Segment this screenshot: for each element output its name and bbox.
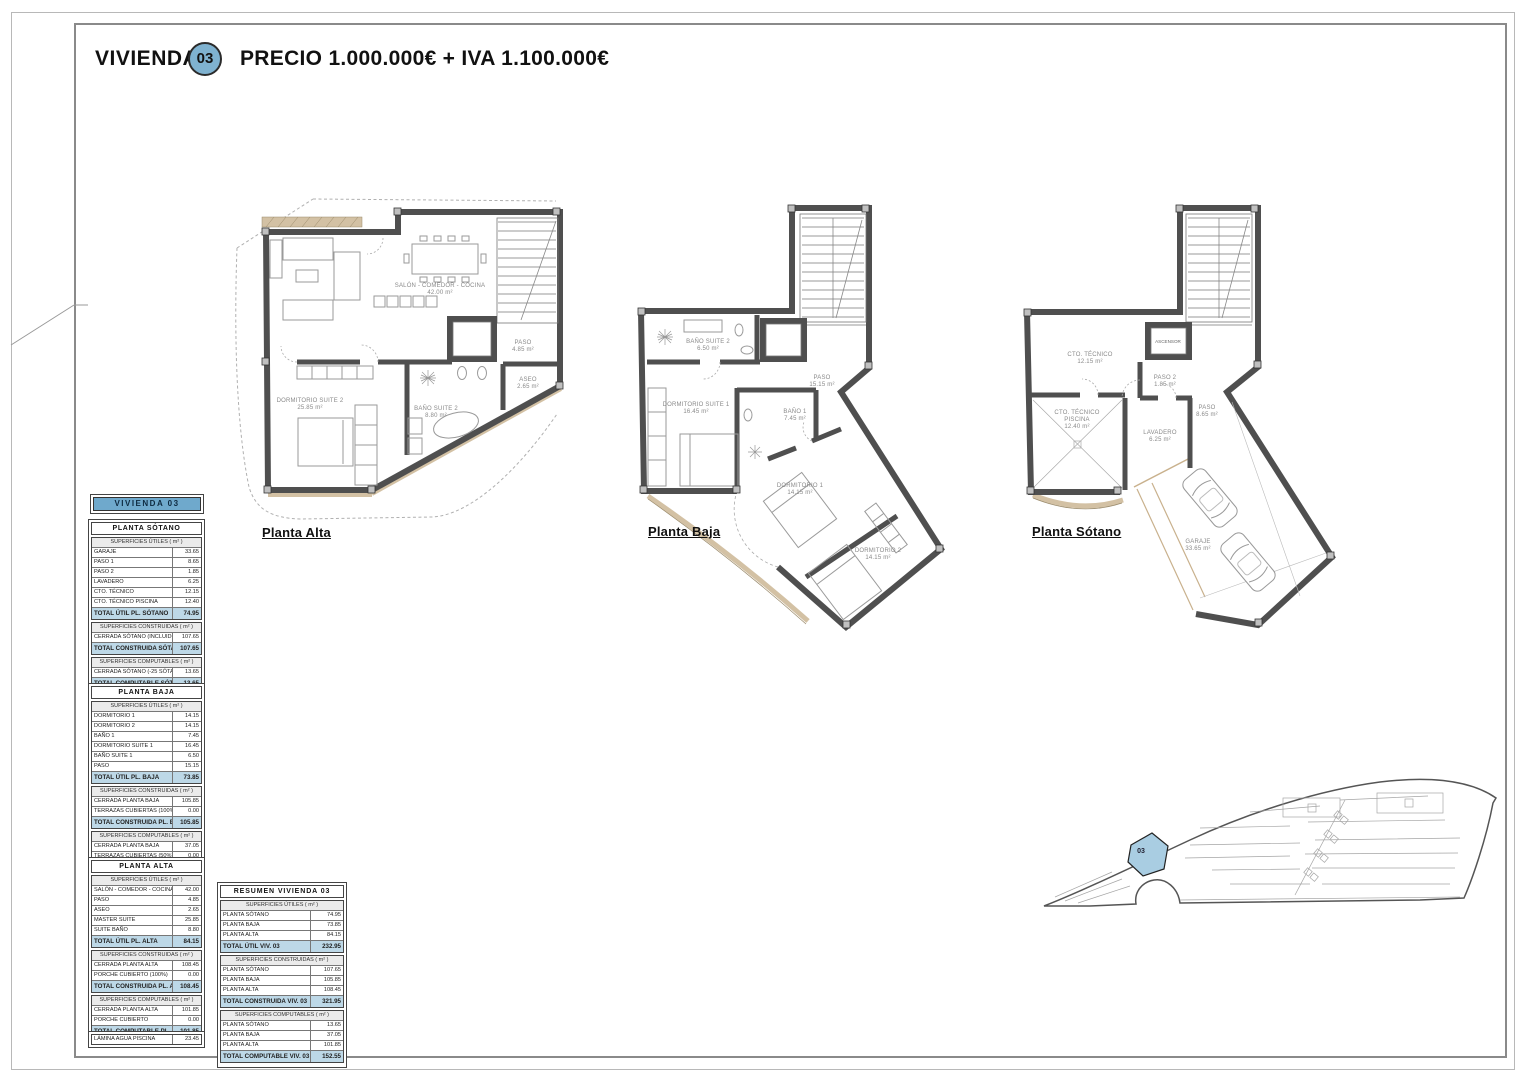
row-value: 8.65	[172, 558, 201, 567]
total-value: 74.95	[172, 608, 201, 619]
row-value: 105.85	[172, 797, 201, 806]
section-subheader: SUPERFICIES CONSTRUIDAS ( m² )	[221, 956, 343, 965]
table-title: RESUMEN VIVIENDA 03	[220, 885, 344, 898]
unit-number-badge: 03	[188, 42, 222, 76]
table-row: PLANTA ALTA 84.15	[221, 930, 343, 940]
row-label: CERRADA PLANTA ALTA	[92, 1006, 172, 1015]
row-label: CTO. TÉCNICO	[92, 588, 172, 597]
table-section: SUPERFICIES ÚTILES ( m² ) DORMITORIO 1 1…	[91, 701, 202, 784]
table-row: MASTER SUITE 25.85	[92, 915, 201, 925]
room-label: CTO. TÉCNICO	[1067, 351, 1112, 358]
table-section: SUPERFICIES COMPUTABLES ( m² ) PLANTA SÓ…	[220, 1010, 344, 1063]
row-value: 14.15	[172, 712, 201, 721]
row-value: 2.65	[172, 906, 201, 915]
shower-icon	[748, 445, 762, 459]
total-label: TOTAL COMPUTABLE VIV. 03	[221, 1051, 310, 1062]
row-value: 25.85	[172, 916, 201, 925]
table-row: CERRADA PLANTA ALTA 101.85	[92, 1005, 201, 1015]
table-total-row: TOTAL COMPUTABLE VIV. 03 152.55	[221, 1050, 343, 1062]
table-row: SALÓN - COMEDOR - COCINA 42.00	[92, 885, 201, 895]
table-row: PLANTA SÓTANO 74.95	[221, 910, 343, 920]
row-label: CERRADA PLANTA BAJA	[92, 842, 172, 851]
row-label: PLANTA ALTA	[221, 986, 310, 995]
row-value: 101.85	[172, 1006, 201, 1015]
row-value: 73.85	[310, 921, 343, 930]
section-subheader: SUPERFICIES ÚTILES ( m² )	[221, 901, 343, 910]
room-area: 6.50 m²	[697, 346, 719, 352]
section-subheader: SUPERFICIES COMPUTABLES ( m² )	[92, 832, 201, 841]
room-label: PASO	[514, 340, 531, 346]
table-planta-sotano: PLANTA SÓTANO SUPERFICIES ÚTILES ( m² ) …	[88, 519, 205, 695]
room-area: 1.85 m²	[1154, 382, 1176, 388]
table-row: CERRADA PLANTA BAJA 105.85	[92, 796, 201, 806]
fold-mark	[0, 290, 100, 360]
table-row: PORCHE CUBIERTO (100%) 0.00	[92, 970, 201, 980]
total-label: TOTAL CONSTRUIDA VIV. 03	[221, 996, 310, 1007]
table-row: CERRADA SÓTANO (-25 SÓTANO) 13.65	[92, 667, 201, 677]
row-label: PASO	[92, 896, 172, 905]
room-label: PASO 2	[1154, 375, 1177, 381]
row-label: CERRADA SÓTANO (INCLUIDO SOT.)	[92, 633, 172, 642]
room-area: 4.85 m²	[512, 347, 534, 353]
room-label: CTO. TÉCNICO	[1054, 409, 1099, 416]
section-subheader: SUPERFICIES COMPUTABLES ( m² )	[92, 996, 201, 1005]
table-total-row: TOTAL CONSTRUIDA PL. BAJA 105.85	[92, 816, 201, 828]
sheet-page: VIVIENDA 03 PRECIO 1.000.000€ + IVA 1.10…	[0, 0, 1527, 1080]
room-area: 15.15 m²	[809, 382, 834, 388]
table-row: DORMITORIO SUITE 1 16.45	[92, 741, 201, 751]
row-value: 13.65	[172, 668, 201, 677]
row-value: 108.45	[172, 961, 201, 970]
table-section: SUPERFICIES CONSTRUIDAS ( m² ) PLANTA SÓ…	[220, 955, 344, 1008]
section-subheader: SUPERFICIES ÚTILES ( m² )	[92, 876, 201, 885]
row-value: 107.65	[172, 633, 201, 642]
row-value: 101.85	[310, 1041, 343, 1050]
table-title: PLANTA SÓTANO	[91, 522, 202, 535]
shower-icon	[420, 370, 436, 386]
terrace-curve	[1033, 495, 1123, 506]
row-value: 105.85	[310, 976, 343, 985]
table-row: PLANTA ALTA 101.85	[221, 1040, 343, 1050]
unit-03-label: 03	[1137, 848, 1145, 855]
table-row: CTO. TÉCNICO 12.15	[92, 587, 201, 597]
table-row: PLANTA SÓTANO 107.65	[221, 965, 343, 975]
total-value: 73.85	[172, 772, 201, 783]
room-label: ASCENSOR	[1155, 339, 1181, 344]
site-key-plan: 03	[1035, 770, 1503, 928]
section-subheader: SUPERFICIES CONSTRUIDAS ( m² )	[92, 623, 201, 632]
table-title: PLANTA BAJA	[91, 686, 202, 699]
shower-icon	[657, 329, 673, 345]
table-row: CERRADA PLANTA ALTA 108.45	[92, 960, 201, 970]
row-label: PORCHE CUBIERTO	[92, 1016, 172, 1025]
table-lamina-agua: LÁMINA AGUA PISCINA 23.45	[88, 1031, 205, 1048]
row-label: PLANTA BAJA	[221, 921, 310, 930]
room-label: PASO	[813, 375, 830, 381]
room-area: 14.15 m²	[865, 555, 890, 561]
row-value: 8.80	[172, 926, 201, 935]
total-label: TOTAL ÚTIL PL. ALTA	[92, 936, 172, 947]
room-label: DORMITORIO 2	[855, 548, 902, 554]
room-area: 12.40 m²	[1064, 424, 1089, 430]
room-area: 25.85 m²	[297, 405, 322, 411]
row-label: LÁMINA AGUA PISCINA	[92, 1035, 172, 1044]
total-value: 108.45	[172, 981, 201, 992]
row-label: LAVADERO	[92, 578, 172, 587]
table-total-row: TOTAL ÚTIL PL. ALTA 84.15	[92, 935, 201, 947]
room-area: 8.65 m²	[1196, 412, 1218, 418]
row-label: CTO. TÉCNICO PISCINA	[92, 598, 172, 607]
row-value: 15.15	[172, 762, 201, 771]
row-value: 0.00	[172, 1016, 201, 1025]
row-label: PLANTA ALTA	[221, 1041, 310, 1050]
room-area: 12.15 m²	[1077, 359, 1102, 365]
section-subheader: SUPERFICIES ÚTILES ( m² )	[92, 538, 201, 547]
row-label: SUITE BAÑO	[92, 926, 172, 935]
room-label: SALÓN - COMEDOR - COCINA	[395, 282, 485, 289]
room-label: DORMITORIO SUITE 2	[277, 398, 344, 404]
total-value: 232.95	[310, 941, 343, 952]
table-planta-baja: PLANTA BAJA SUPERFICIES ÚTILES ( m² ) DO…	[88, 683, 205, 879]
table-row: PLANTA BAJA 37.05	[221, 1030, 343, 1040]
table-row: DORMITORIO 1 14.15	[92, 711, 201, 721]
table-row: PASO 1 8.65	[92, 557, 201, 567]
row-label: CERRADA SÓTANO (-25 SÓTANO)	[92, 668, 172, 677]
caption-planta-alta: Planta Alta	[262, 525, 331, 540]
row-label: BAÑO SUITE 1	[92, 752, 172, 761]
total-label: TOTAL ÚTIL VIV. 03	[221, 941, 310, 952]
row-value: 0.00	[172, 971, 201, 980]
planta-sotano-plan: CTO. TÉCNICO 12.15 m² ASCENSOR PASO 2 1.…	[1016, 194, 1376, 659]
row-label: ASEO	[92, 906, 172, 915]
row-value: 23.45	[172, 1035, 201, 1044]
vivienda-banner: VIVIENDA 03	[90, 494, 204, 514]
room-label: BAÑO SUITE 2	[686, 338, 730, 345]
room-label: PASO	[1198, 405, 1215, 411]
row-value: 14.15	[172, 722, 201, 731]
row-value: 42.00	[172, 886, 201, 895]
table-total-row: TOTAL ÚTIL PL. SÓTANO 74.95	[92, 607, 201, 619]
row-value: 12.40	[172, 598, 201, 607]
table-resumen: RESUMEN VIVIENDA 03 SUPERFICIES ÚTILES (…	[217, 882, 347, 1068]
row-label: PLANTA BAJA	[221, 1031, 310, 1040]
row-label: PLANTA BAJA	[221, 976, 310, 985]
room-label: PISCINA	[1064, 417, 1089, 423]
section-subheader: SUPERFICIES CONSTRUIDAS ( m² )	[92, 787, 201, 796]
room-area: 42.00 m²	[427, 290, 452, 296]
section-subheader: SUPERFICIES CONSTRUIDAS ( m² )	[92, 951, 201, 960]
row-label: CERRADA PLANTA ALTA	[92, 961, 172, 970]
room-area: 8.80 m²	[425, 413, 447, 419]
row-value: 33.65	[172, 548, 201, 557]
table-row: ASEO 2.65	[92, 905, 201, 915]
table-row: DORMITORIO 2 14.15	[92, 721, 201, 731]
row-value: 12.15	[172, 588, 201, 597]
room-area: 2.65 m²	[517, 384, 539, 390]
table-row: TERRAZAS CUBIERTAS (100%) 0.00	[92, 806, 201, 816]
row-value: 37.05	[172, 842, 201, 851]
table-row: PLANTA ALTA 108.45	[221, 985, 343, 995]
row-label: PLANTA ALTA	[221, 931, 310, 940]
table-row: BAÑO 1 7.45	[92, 731, 201, 741]
site-outline	[1044, 779, 1496, 906]
table-row: PLANTA SÓTANO 13.65	[221, 1020, 343, 1030]
row-value: 4.85	[172, 896, 201, 905]
total-label: TOTAL ÚTIL PL. BAJA	[92, 772, 172, 783]
table-row: SUITE BAÑO 8.80	[92, 925, 201, 935]
caption-planta-baja: Planta Baja	[648, 524, 720, 539]
row-value: 7.45	[172, 732, 201, 741]
total-label: TOTAL CONSTRUIDA SÓTANO	[92, 643, 172, 654]
room-label: DORMITORIO 1	[777, 483, 824, 489]
row-label: MASTER SUITE	[92, 916, 172, 925]
room-label: LAVADERO	[1143, 430, 1177, 436]
row-label: SALÓN - COMEDOR - COCINA	[92, 886, 172, 895]
row-label: PASO 1	[92, 558, 172, 567]
row-value: 84.15	[310, 931, 343, 940]
row-label: PORCHE CUBIERTO (100%)	[92, 971, 172, 980]
section-subheader: SUPERFICIES COMPUTABLES ( m² )	[221, 1011, 343, 1020]
table-row: GARAJE 33.65	[92, 547, 201, 557]
table-row: CERRADA PLANTA BAJA 37.05	[92, 841, 201, 851]
table-planta-alta: PLANTA ALTA SUPERFICIES ÚTILES ( m² ) SA…	[88, 857, 205, 1043]
total-value: 105.85	[172, 817, 201, 828]
row-label: CERRADA PLANTA BAJA	[92, 797, 172, 806]
planta-baja-plan: BAÑO SUITE 2 6.50 m² PASO 15.15 m² DORMI…	[626, 194, 961, 644]
room-label: BAÑO 1	[783, 408, 807, 415]
row-value: 1.85	[172, 568, 201, 577]
planta-alta-plan: SALÓN - COMEDOR - COCINA 42.00 m² PASO 4…	[233, 194, 578, 539]
caption-planta-sotano: Planta Sótano	[1032, 524, 1121, 539]
room-label: ASEO	[519, 377, 537, 383]
row-value: 37.05	[310, 1031, 343, 1040]
room-label: GARAJE	[1185, 539, 1210, 545]
row-label: GARAJE	[92, 548, 172, 557]
row-value: 108.45	[310, 986, 343, 995]
total-value: 84.15	[172, 936, 201, 947]
row-value: 6.50	[172, 752, 201, 761]
row-label: BAÑO 1	[92, 732, 172, 741]
page-title: VIVIENDA	[95, 47, 198, 71]
table-row: LÁMINA AGUA PISCINA 23.45	[91, 1034, 202, 1045]
vivienda-banner-label: VIVIENDA 03	[93, 497, 201, 511]
row-label: DORMITORIO SUITE 1	[92, 742, 172, 751]
room-area: 7.45 m²	[784, 416, 806, 422]
table-section: SUPERFICIES CONSTRUIDAS ( m² ) CERRADA P…	[91, 950, 202, 993]
room-area: 33.65 m²	[1185, 546, 1210, 552]
total-label: TOTAL CONSTRUIDA PL. BAJA	[92, 817, 172, 828]
table-row: PASO 15.15	[92, 761, 201, 771]
table-total-row: TOTAL CONSTRUIDA PL. ALTA 108.45	[92, 980, 201, 992]
table-row: PORCHE CUBIERTO 0.00	[92, 1015, 201, 1025]
table-total-row: TOTAL ÚTIL PL. BAJA 73.85	[92, 771, 201, 783]
row-label: PASO	[92, 762, 172, 771]
table-row: PASO 4.85	[92, 895, 201, 905]
table-row: PLANTA BAJA 73.85	[221, 920, 343, 930]
row-label: DORMITORIO 1	[92, 712, 172, 721]
row-value: 13.65	[310, 1021, 343, 1030]
table-row: LAVADERO 6.25	[92, 577, 201, 587]
total-value: 107.65	[172, 643, 201, 654]
table-section: SUPERFICIES ÚTILES ( m² ) SALÓN - COMEDO…	[91, 875, 202, 948]
table-row: PASO 2 1.85	[92, 567, 201, 577]
table-total-row: TOTAL CONSTRUIDA VIV. 03 321.95	[221, 995, 343, 1007]
table-section: SUPERFICIES ÚTILES ( m² ) PLANTA SÓTANO …	[220, 900, 344, 953]
row-label: PLANTA SÓTANO	[221, 911, 310, 920]
total-value: 152.55	[310, 1051, 343, 1062]
table-row: CTO. TÉCNICO PISCINA 12.40	[92, 597, 201, 607]
table-section: SUPERFICIES CONSTRUIDAS ( m² ) CERRADA P…	[91, 786, 202, 829]
row-label: DORMITORIO 2	[92, 722, 172, 731]
row-value: 0.00	[172, 807, 201, 816]
row-label: TERRAZAS CUBIERTAS (100%)	[92, 807, 172, 816]
row-value: 16.45	[172, 742, 201, 751]
table-total-row: TOTAL CONSTRUIDA SÓTANO 107.65	[92, 642, 201, 654]
total-label: TOTAL CONSTRUIDA PL. ALTA	[92, 981, 172, 992]
row-label: PLANTA SÓTANO	[221, 1021, 310, 1030]
terrace-strip	[262, 217, 362, 227]
room-area: 6.25 m²	[1149, 437, 1171, 443]
table-row: PLANTA BAJA 105.85	[221, 975, 343, 985]
row-value: 6.25	[172, 578, 201, 587]
section-subheader: SUPERFICIES COMPUTABLES ( m² )	[92, 658, 201, 667]
room-area: 14.15 m²	[787, 490, 812, 496]
price-line: PRECIO 1.000.000€ + IVA 1.100.000€	[240, 47, 609, 71]
total-label: TOTAL ÚTIL PL. SÓTANO	[92, 608, 172, 619]
total-value: 321.95	[310, 996, 343, 1007]
table-section: SUPERFICIES ÚTILES ( m² ) GARAJE 33.65 P…	[91, 537, 202, 620]
table-row: CERRADA SÓTANO (INCLUIDO SOT.) 107.65	[92, 632, 201, 642]
room-area: 16.45 m²	[683, 409, 708, 415]
room-label: DORMITORIO SUITE 1	[663, 402, 730, 408]
table-total-row: TOTAL ÚTIL VIV. 03 232.95	[221, 940, 343, 952]
room-label: BAÑO SUITE 2	[414, 405, 458, 412]
table-section: SUPERFICIES CONSTRUIDAS ( m² ) CERRADA S…	[91, 622, 202, 655]
row-label: PASO 2	[92, 568, 172, 577]
row-value: 107.65	[310, 966, 343, 975]
section-subheader: SUPERFICIES ÚTILES ( m² )	[92, 702, 201, 711]
table-title: PLANTA ALTA	[91, 860, 202, 873]
row-value: 74.95	[310, 911, 343, 920]
row-label: PLANTA SÓTANO	[221, 966, 310, 975]
table-row: BAÑO SUITE 1 6.50	[92, 751, 201, 761]
